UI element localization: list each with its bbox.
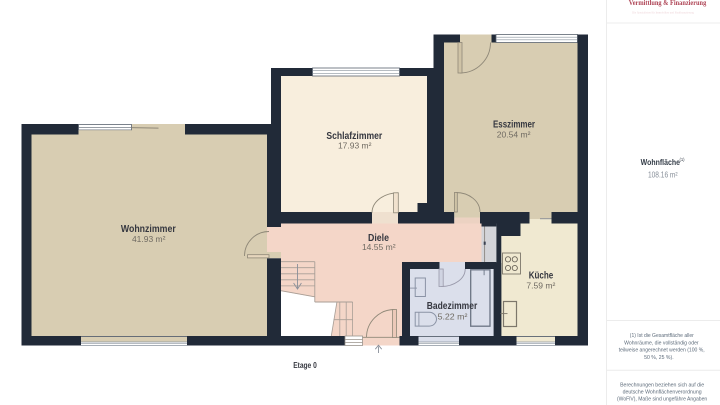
svg-text:Wohnfläche: Wohnfläche xyxy=(641,157,681,167)
svg-text:41.93 m²: 41.93 m² xyxy=(132,234,166,244)
svg-text:14.55 m²: 14.55 m² xyxy=(362,242,396,252)
svg-text:17.93 m²: 17.93 m² xyxy=(338,141,372,151)
svg-text:teilweise angerechnet werden (: teilweise angerechnet werden (100 %, xyxy=(619,348,705,354)
svg-text:20.54 m²: 20.54 m² xyxy=(497,129,531,139)
svg-text:108.16 m²: 108.16 m² xyxy=(648,170,678,179)
svg-text:7.59 m²: 7.59 m² xyxy=(526,281,555,291)
svg-text:Vermittlung & Finanzierung: Vermittlung & Finanzierung xyxy=(629,0,707,7)
svg-text:Wohnräume, die vollständig ode: Wohnräume, die vollständig oder xyxy=(624,340,699,346)
svg-text:(WoFlV), Maße sind ungefähre A: (WoFlV), Maße sind ungefähre Angaben xyxy=(617,396,707,402)
svg-text:Die Spezialisten für Immobilie: Die Spezialisten für Immobilien und Bauf… xyxy=(632,11,694,15)
svg-text:Badezimmer: Badezimmer xyxy=(427,301,478,312)
svg-text:Küche: Küche xyxy=(529,270,554,281)
svg-text:(1): (1) xyxy=(679,157,685,162)
svg-text:50 %, 25 %).: 50 %, 25 %). xyxy=(644,355,674,361)
svg-text:Berechnungen beziehen sich auf: Berechnungen beziehen sich auf die xyxy=(620,382,704,388)
svg-text:Etage 0: Etage 0 xyxy=(293,361,317,370)
svg-text:deutsche Wohnflächenverordnung: deutsche Wohnflächenverordnung xyxy=(623,389,702,395)
svg-text:(1) Ist die Gesamtfläche aller: (1) Ist die Gesamtfläche aller xyxy=(630,333,694,339)
svg-text:5.22 m²: 5.22 m² xyxy=(438,312,468,322)
